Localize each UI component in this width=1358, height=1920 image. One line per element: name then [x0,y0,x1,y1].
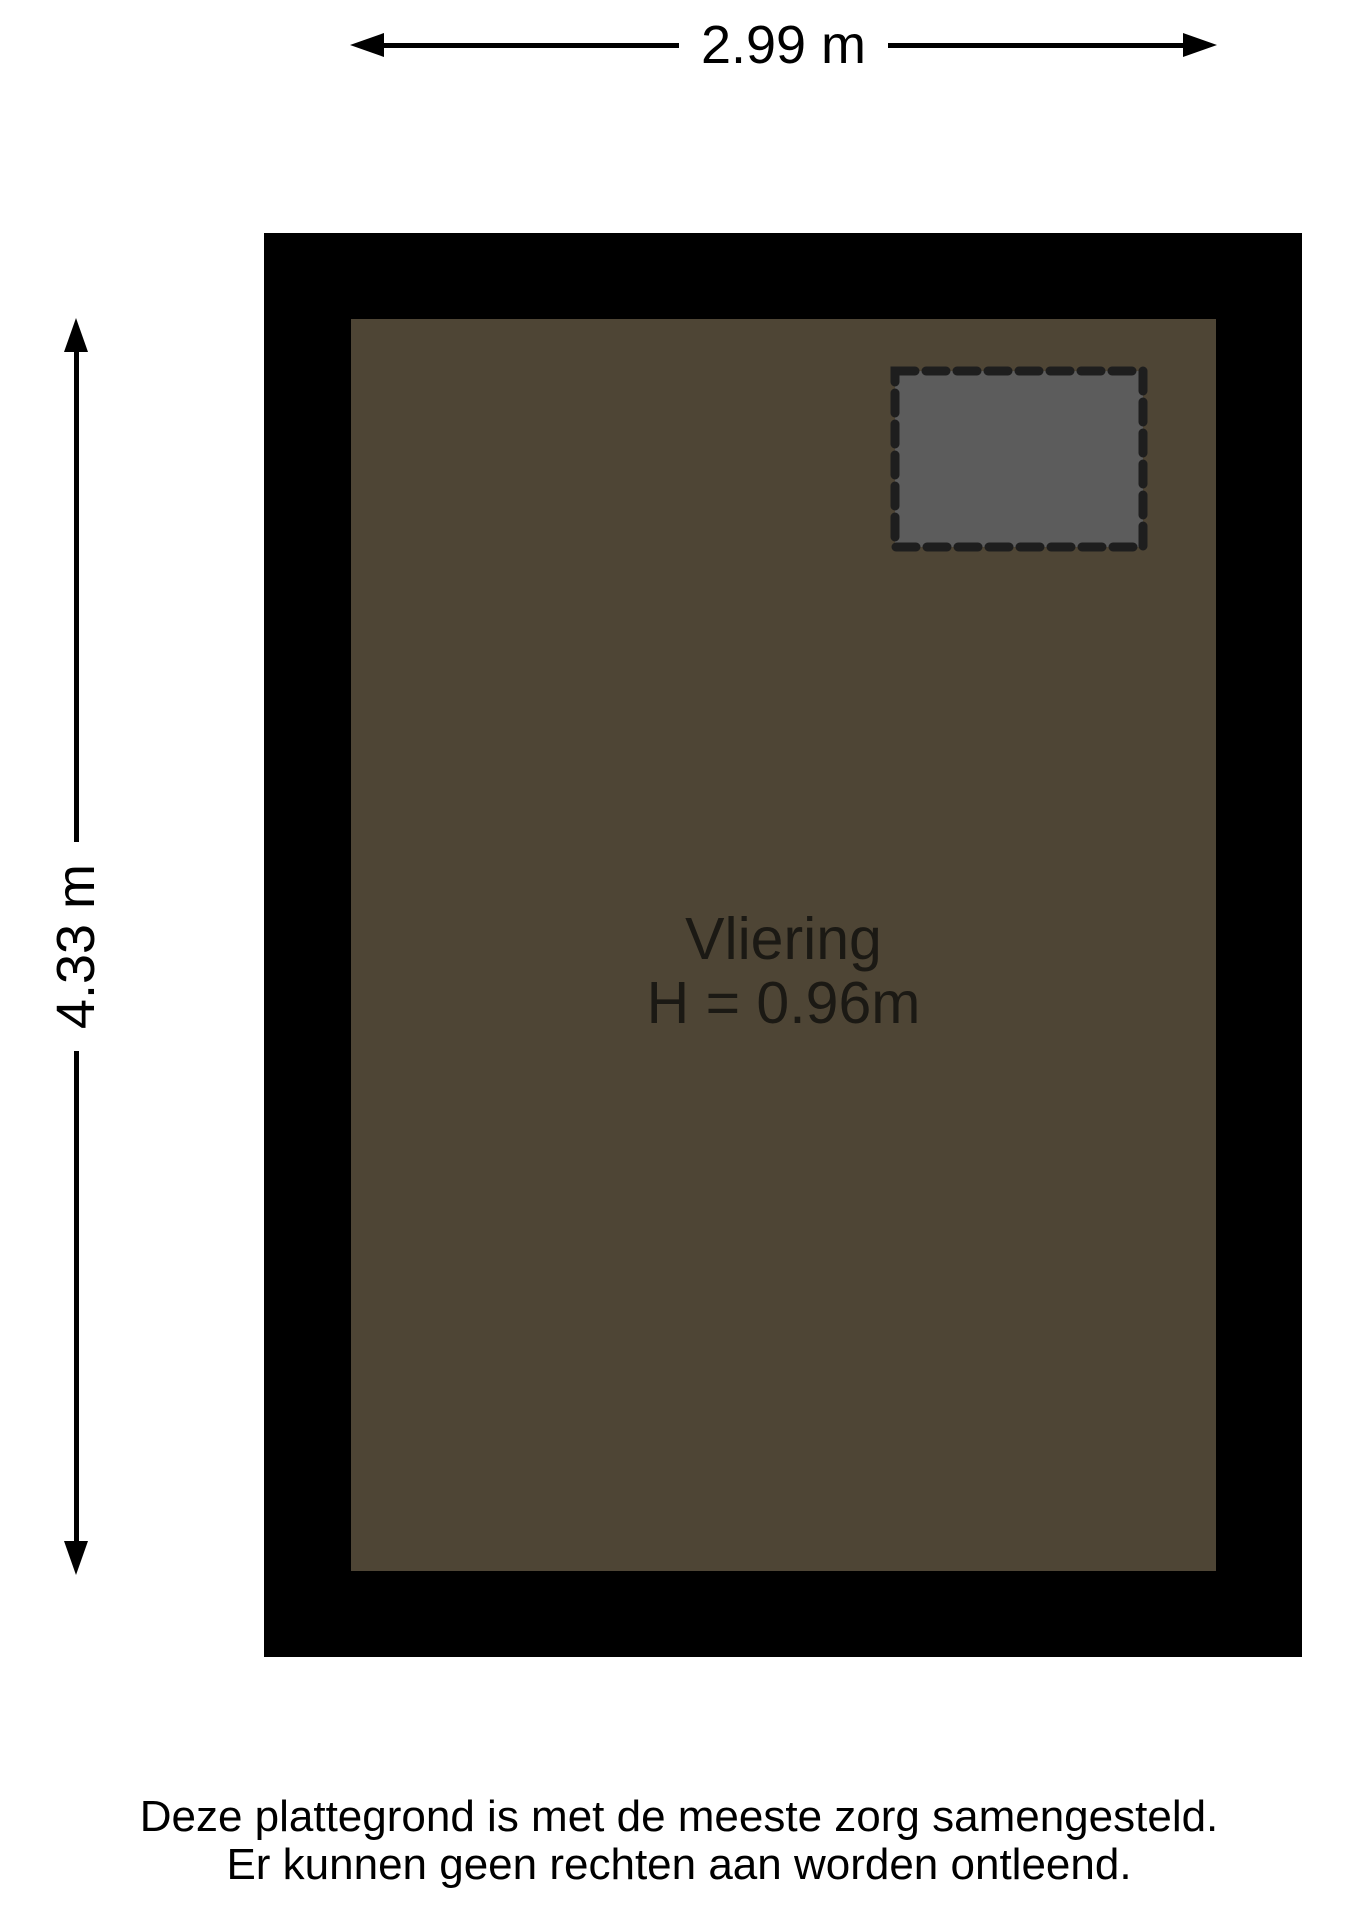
disclaimer-line-1: Deze plattegrond is met de meeste zorg s… [0,1793,1358,1841]
width-dimension-label: 2.99 m [679,18,888,72]
room-floor-vliering: Vliering H = 0.96m [351,319,1216,1571]
depth-dimension: 4.33 m [55,318,97,1575]
floorplan-canvas: 2.99 m 4.33 m Vliering H = 0.96m Deze pl… [0,0,1358,1920]
arrowhead-down-icon [64,1541,88,1575]
dimension-line-segment [74,1051,79,1541]
dimension-line-segment [74,352,79,842]
room-label: Vliering H = 0.96m [351,907,1216,1035]
arrowhead-right-icon [1183,33,1217,57]
dimension-line-segment [384,43,679,48]
depth-dimension-label: 4.33 m [49,842,103,1051]
disclaimer: Deze plattegrond is met de meeste zorg s… [0,1793,1358,1889]
loft-hatch [890,366,1148,552]
room-name: Vliering [351,907,1216,971]
disclaimer-line-2: Er kunnen geen rechten aan worden ontlee… [0,1841,1358,1889]
arrowhead-left-icon [350,33,384,57]
room-ceiling-height: H = 0.96m [351,971,1216,1035]
dimension-line-segment [888,43,1183,48]
loft-hatch-rect [895,371,1143,547]
outer-wall: Vliering H = 0.96m [264,233,1302,1657]
arrowhead-up-icon [64,318,88,352]
width-dimension: 2.99 m [350,24,1217,66]
